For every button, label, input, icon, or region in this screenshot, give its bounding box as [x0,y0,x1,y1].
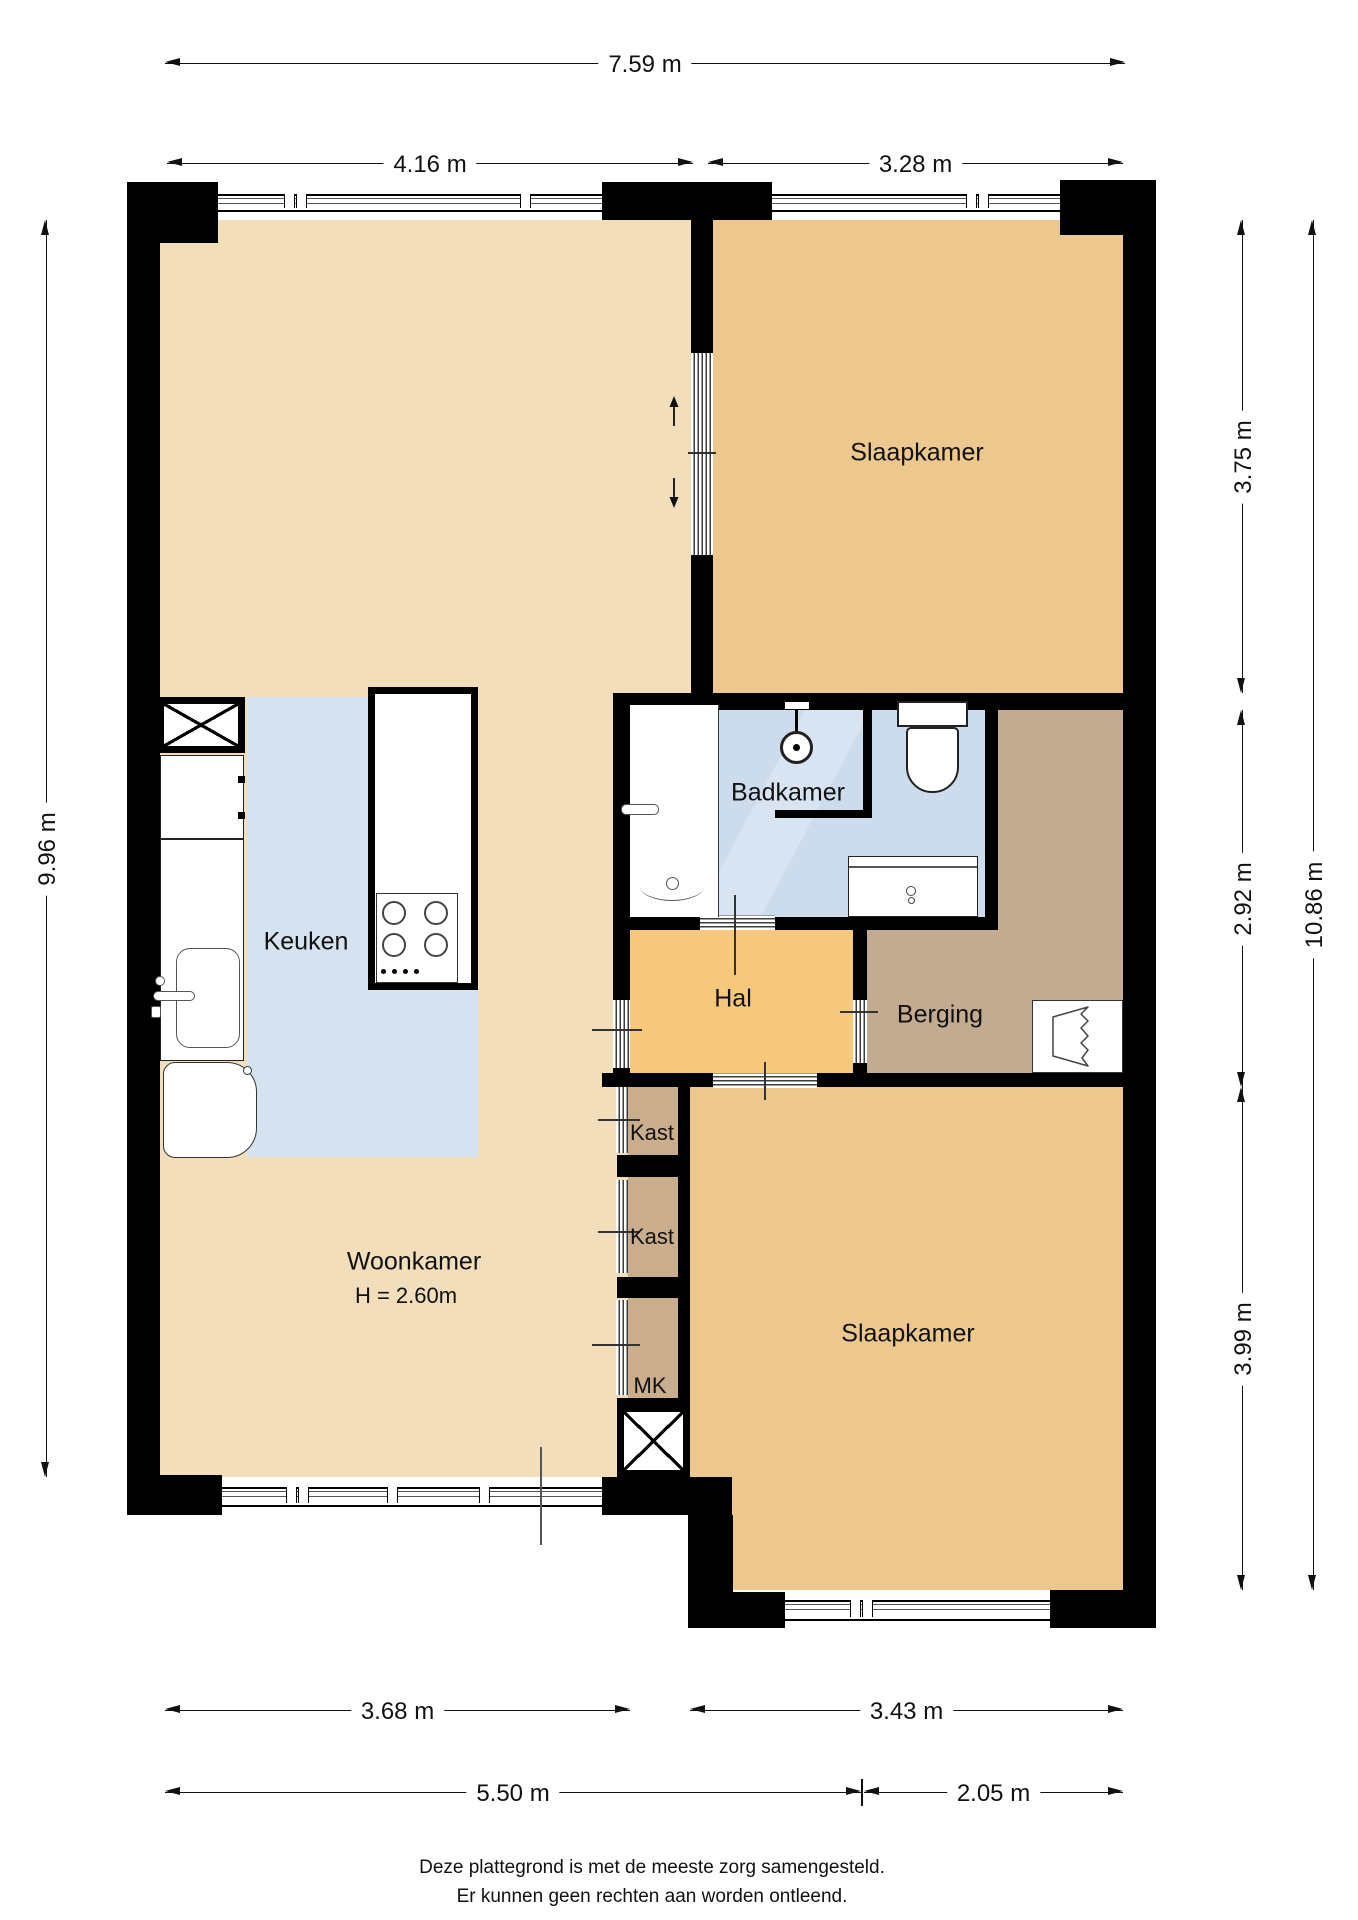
window-post [284,194,295,208]
window-post [850,1600,861,1617]
window-bottom-woonkamer [222,1487,602,1507]
toilet-tank-icon [897,701,968,727]
wall-badkamer-bottom-right [775,917,998,930]
dimension-right-middle: 2.92 m [1242,710,1243,1087]
shower-door-handle-icon [621,804,659,815]
wall-badkamer-right [985,705,998,930]
ventilation-shaft-icon [617,1405,690,1477]
room-height-note: H = 2.60m [355,1283,457,1309]
drain-icon [666,877,679,890]
door-hal-berging [853,1000,867,1063]
disclaimer-line2: Er kunnen geen rechten aan worden ontlee… [0,1882,1304,1911]
floorplan: Slaapkamer Badkamer Keuken Hal Berging W… [0,0,1358,1920]
wall-bath-partial-horizontal [775,810,872,818]
window-post [286,1487,297,1503]
faucet-icon [153,991,195,1001]
wall-divider-lower [691,555,713,697]
dimension-label: 3.43 m [860,1698,953,1726]
window-post [479,1487,490,1503]
room-label-berging: Berging [897,1001,983,1030]
wall-right [1123,180,1156,1628]
window-post [387,1487,398,1503]
wall-hal-bottom-right [817,1073,1123,1087]
dimension-right-bottom: 3.99 m [1242,1087,1243,1590]
disclaimer-line1: Deze plattegrond is met de meeste zorg s… [0,1853,1304,1882]
window-bottom-slaapkamer [785,1600,1050,1621]
dimension-left-total: 9.96 m [46,220,47,1477]
dimension-right-top: 3.75 m [1242,220,1243,693]
window-post [296,194,307,208]
door-woonkamer-hal [613,1000,630,1068]
dimension-label: 2.92 m [1230,852,1258,945]
wall-kast-right [678,1087,690,1410]
washbasin-edge-line [849,866,977,868]
room-label-woonkamer: Woonkamer [347,1248,481,1277]
dimension-top-left: 4.16 m [167,163,693,164]
window-post [966,194,977,208]
wall-divider-upper [691,220,713,353]
dimension-bottom-total-left: 5.50 m [165,1792,861,1793]
dimension-label: 3.68 m [351,1698,444,1726]
dimension-label: 4.16 m [383,151,476,179]
wall-berging-door-upper [853,930,867,1000]
wall-hal-left-post [613,1068,630,1087]
showerhead-mount-icon [784,701,810,710]
faucet-base-icon [151,1006,161,1018]
room-label-kast2: Kast [630,1224,674,1250]
burner-icon [424,933,448,957]
door-mark [734,895,736,975]
dimension-top-total: 7.59 m [165,63,1125,64]
door-mk [616,1300,628,1395]
dimension-bottom-total-right: 2.05 m [864,1792,1123,1793]
dimension-divider-tick [861,1779,863,1806]
door-mark [764,1062,766,1100]
stove-knob-icon [392,969,397,974]
dimension-label: 7.59 m [598,51,691,79]
wall-step-vertical [688,1515,733,1592]
showerhead-dot-icon [793,744,800,751]
burner-icon [382,901,406,925]
stove-knob-icon [403,969,408,974]
window-divider-line [540,1447,542,1545]
tap-icon [906,886,916,896]
sliding-door-slaapkamer1 [691,353,713,555]
room-label-hal: Hal [714,985,752,1014]
wall-bath-partial-vertical [863,705,872,818]
room-label-keuken: Keuken [264,928,349,957]
dimension-label: 9.96 m [34,802,62,895]
clothes-icon [1032,1000,1123,1073]
room-label-slaapkamer2: Slaapkamer [841,1320,974,1349]
hinge-icon [238,776,245,783]
arrow-up-icon [666,396,682,426]
fridge-icon [160,755,244,839]
dimension-right-total: 10.86 m [1313,220,1314,1590]
burner-icon [382,933,406,957]
wall-kast-sep1 [617,1155,690,1177]
window-post [862,1600,873,1617]
dimension-top-right: 3.28 m [708,163,1123,164]
door-mark [688,452,716,454]
dimension-label: 5.50 m [466,1780,559,1808]
wall-step-bottom [602,1477,732,1515]
wall-badkamer-bottom-left [613,917,700,930]
arrow-down-icon [666,478,682,508]
tap-icon [908,897,915,904]
dimension-label: 10.86 m [1301,852,1329,959]
room-label-mk: MK [634,1373,667,1399]
door-kast2 [616,1180,628,1273]
faucet-knob-icon [155,976,165,986]
wall-step-horizontal [688,1592,785,1628]
dimension-bottom-left: 3.68 m [165,1710,630,1711]
room-label-slaapkamer1: Slaapkamer [850,439,983,468]
toilet-bowl-icon [906,727,959,793]
door-badkamer-hal [700,915,775,930]
room-label-badkamer: Badkamer [731,779,845,808]
stove-knob-icon [414,969,419,974]
ventilation-shaft-icon [157,697,245,753]
window-post [520,194,531,208]
dimension-label: 2.05 m [947,1780,1040,1808]
wall-top-middle [602,182,772,220]
room-label-kast1: Kast [630,1120,674,1146]
dimension-label: 3.99 m [1230,1292,1258,1385]
wall-corner-bottom-left [127,1475,222,1515]
hinge-icon [238,812,245,819]
dishwasher-icon [163,1062,257,1158]
door-mark [840,1011,878,1013]
window-top-woonkamer [218,194,602,212]
wall-kast-sep2 [617,1277,690,1298]
dimension-label: 3.28 m [869,151,962,179]
door-mark [592,1029,642,1031]
burner-icon [424,901,448,925]
hinge-icon [243,1066,252,1075]
dimension-label: 3.75 m [1230,410,1258,503]
stove-knob-icon [381,969,386,974]
disclaimer: Deze plattegrond is met de meeste zorg s… [0,1853,1304,1912]
wall-left [127,182,160,1515]
window-post [298,1487,309,1503]
window-top-slaapkamer [772,194,1060,212]
window-post [978,194,989,208]
door-mark [592,1344,640,1346]
dimension-bottom-right: 3.43 m [690,1710,1123,1711]
wall-corner-bottom-right [1050,1590,1156,1628]
wall-corner-top-left [127,182,218,243]
